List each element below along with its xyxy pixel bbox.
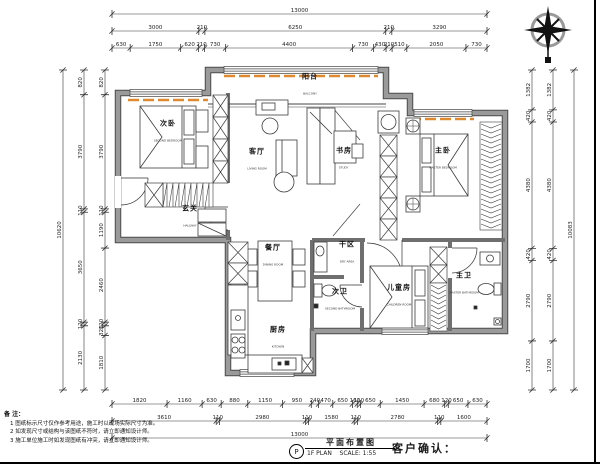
svg-text:110: 110 xyxy=(434,415,445,421)
dim-left-col-3: 8203790110119024601203201810 xyxy=(99,67,109,392)
svg-text:820: 820 xyxy=(99,77,105,88)
entry-closet xyxy=(163,183,213,207)
compass-icon xyxy=(522,4,574,66)
second-bath-toilet xyxy=(314,284,336,308)
bed-kids-room xyxy=(370,266,428,328)
svg-text:3290: 3290 xyxy=(432,25,446,31)
svg-text:650: 650 xyxy=(453,398,464,404)
svg-text:950: 950 xyxy=(292,398,303,404)
dining-set xyxy=(245,241,305,301)
svg-text:1382: 1382 xyxy=(526,83,532,97)
master-bath-fixtures xyxy=(474,252,501,325)
svg-text:320: 320 xyxy=(99,325,105,336)
notes-heading: 备 注： xyxy=(4,410,254,420)
floor-plan-sheet: 1300030002106250210329063017506202107304… xyxy=(0,0,600,468)
svg-text:1160: 1160 xyxy=(178,398,192,404)
svg-text:730: 730 xyxy=(471,42,482,48)
svg-text:880: 880 xyxy=(229,398,240,404)
note-line: 1 图纸标示尺寸仅作参考用途，施工时以现场实际尺寸为准。 xyxy=(4,420,254,429)
svg-text:630: 630 xyxy=(116,42,127,48)
svg-text:650: 650 xyxy=(365,398,376,404)
dry-area-basin xyxy=(314,242,327,272)
svg-text:1820: 1820 xyxy=(133,398,147,404)
dim-right-overall: 10083 xyxy=(568,67,578,392)
svg-text:2130: 2130 xyxy=(78,350,84,364)
sheet-border-bottom xyxy=(0,462,600,464)
bed-master-bedroom xyxy=(406,118,468,212)
svg-text:3790: 3790 xyxy=(99,144,105,158)
shelving-column-study xyxy=(380,135,397,240)
svg-text:1382: 1382 xyxy=(547,83,553,97)
dim-left-col-2: 820379011036501202130 xyxy=(78,67,88,392)
svg-text:3000: 3000 xyxy=(148,25,162,31)
svg-text:420: 420 xyxy=(547,110,553,121)
svg-text:420: 420 xyxy=(547,249,553,260)
dim-top-row-2: 300021062502103290 xyxy=(109,25,489,35)
dim-right-col-2: 1382420438042027901700 xyxy=(547,67,557,392)
kids-wardrobe-hanging xyxy=(430,283,447,331)
dim-left-overall: 10620 xyxy=(57,67,67,392)
wardrobe-second-bedroom xyxy=(213,95,228,183)
note-line: 3 施工单位施工时如发现图纸有冲突，请立即通知设计师。 xyxy=(4,437,254,446)
svg-text:630: 630 xyxy=(472,398,483,404)
svg-text:510: 510 xyxy=(394,42,405,48)
dim-top-overall: 13000 xyxy=(109,8,489,18)
svg-text:13000: 13000 xyxy=(291,8,309,14)
svg-text:730: 730 xyxy=(358,42,369,48)
floor-plan-drawing: 1300030002106250210329063017506202107304… xyxy=(0,0,600,468)
svg-text:420: 420 xyxy=(526,110,532,121)
notes-block: 备 注： 1 图纸标示尺寸仅作参考用途，施工时以现场实际尺寸为准。 2 如发现尺… xyxy=(4,410,254,446)
svg-text:4400: 4400 xyxy=(282,42,296,48)
svg-text:3790: 3790 xyxy=(78,144,84,158)
study-furniture xyxy=(334,131,363,163)
svg-text:1450: 1450 xyxy=(395,398,409,404)
svg-text:4380: 4380 xyxy=(547,178,553,192)
svg-text:110: 110 xyxy=(354,398,365,404)
svg-text:2050: 2050 xyxy=(429,42,443,48)
svg-text:4380: 4380 xyxy=(526,178,532,192)
living-room-furniture xyxy=(256,100,335,192)
svg-text:6250: 6250 xyxy=(288,25,302,31)
dim-top-row-3: 630175062021073044007304302105102050730 xyxy=(109,42,489,52)
svg-text:1600: 1600 xyxy=(457,415,471,421)
svg-text:1700: 1700 xyxy=(547,358,553,372)
master-wardrobe-hanging xyxy=(480,122,502,230)
note-line: 2 如发现尺寸或结构与该图纸不符时，请立即通知设计师。 xyxy=(4,428,254,437)
svg-text:10083: 10083 xyxy=(568,221,574,239)
plan-circle-mark: P xyxy=(289,444,304,459)
svg-text:1700: 1700 xyxy=(526,358,532,372)
sheet-title-en: 1F PLAN SCALE: 1:55 xyxy=(307,450,399,457)
kitchen-corner-cabinet xyxy=(302,358,313,373)
svg-text:470: 470 xyxy=(320,398,331,404)
svg-text:2460: 2460 xyxy=(99,278,105,292)
svg-text:1810: 1810 xyxy=(99,355,105,369)
svg-text:1150: 1150 xyxy=(258,398,272,404)
sheet-title-cn: 平面布置图 xyxy=(307,437,395,448)
svg-text:10620: 10620 xyxy=(57,221,63,239)
svg-text:1580: 1580 xyxy=(324,415,338,421)
svg-text:1190: 1190 xyxy=(99,223,105,237)
svg-text:110: 110 xyxy=(351,415,362,421)
svg-text:680: 680 xyxy=(429,398,440,404)
svg-text:420: 420 xyxy=(526,249,532,260)
svg-text:650: 650 xyxy=(337,398,348,404)
svg-text:3650: 3650 xyxy=(78,260,84,274)
entry-closet-end xyxy=(145,183,163,207)
washer-and-column xyxy=(378,111,399,133)
svg-text:2790: 2790 xyxy=(526,293,532,307)
customer-confirm-label: 客户确认： xyxy=(392,440,457,456)
svg-text:620: 620 xyxy=(184,42,195,48)
bed-second-bedroom xyxy=(140,106,208,168)
svg-text:2790: 2790 xyxy=(547,293,553,307)
sheet-border-right xyxy=(594,0,596,464)
kitchen-tall-cabinet xyxy=(228,242,248,284)
svg-text:2780: 2780 xyxy=(391,415,405,421)
svg-text:1750: 1750 xyxy=(148,42,162,48)
svg-text:2980: 2980 xyxy=(255,415,269,421)
svg-text:120: 120 xyxy=(441,398,452,404)
entry-cabinets xyxy=(198,209,226,236)
svg-text:120: 120 xyxy=(78,318,84,329)
svg-text:110: 110 xyxy=(78,205,84,216)
svg-text:110: 110 xyxy=(302,415,313,421)
svg-text:820: 820 xyxy=(78,77,84,88)
dim-right-col-1: 1382420438042027901700 xyxy=(526,67,536,392)
svg-text:630: 630 xyxy=(206,398,217,404)
dim-bottom-row-1: 1820116063088011509502404706501601106501… xyxy=(109,398,489,408)
title-underline xyxy=(305,448,395,449)
plan-name-en: 1F PLAN xyxy=(307,450,332,457)
svg-text:730: 730 xyxy=(210,42,221,48)
kids-wardrobe-upper xyxy=(430,247,447,283)
svg-text:110: 110 xyxy=(99,205,105,216)
scale-label: SCALE: 1:55 xyxy=(340,450,377,457)
